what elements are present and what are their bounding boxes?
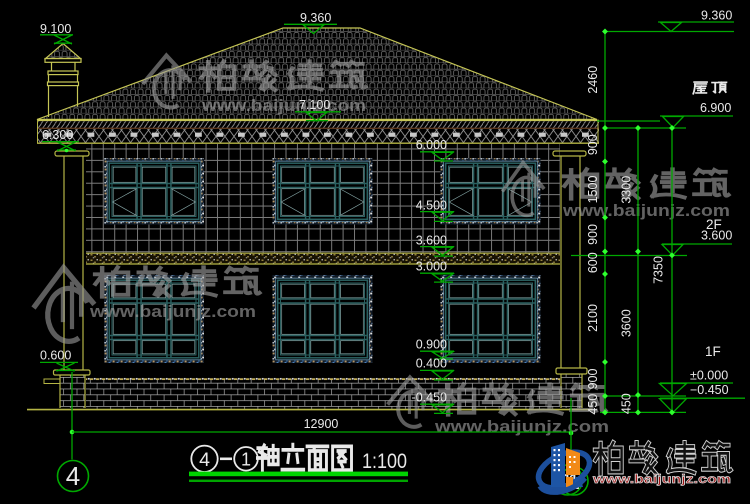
svg-text:12900: 12900 [304,417,339,431]
svg-text:6.000: 6.000 [416,138,447,152]
svg-text:600: 600 [586,252,600,273]
svg-text:1:100: 1:100 [362,449,407,473]
svg-text:3600: 3600 [620,309,634,337]
svg-text:1500: 1500 [586,176,600,204]
svg-text:-0.450: -0.450 [412,391,447,405]
svg-text:3.600: 3.600 [416,234,447,248]
svg-text:0.900: 0.900 [416,338,447,352]
svg-text:1: 1 [241,450,251,470]
svg-text:2460: 2460 [586,66,600,94]
svg-text:900: 900 [586,369,600,390]
svg-text:4.500: 4.500 [416,199,447,213]
svg-text:www.baijunjz.com: www.baijunjz.com [201,96,366,115]
svg-text:900: 900 [586,134,600,155]
svg-text:9.100: 9.100 [40,22,71,36]
svg-text:900: 900 [586,224,600,245]
svg-text:6.300: 6.300 [42,128,73,142]
svg-text:6.900: 6.900 [700,101,731,115]
svg-text:1F: 1F [705,344,721,359]
svg-text:www.baijunjz.com: www.baijunjz.com [89,302,256,321]
svg-text:0.600: 0.600 [40,349,71,363]
svg-text:9.360: 9.360 [701,9,732,23]
svg-text:2100: 2100 [586,304,600,332]
svg-text:3300: 3300 [620,176,634,204]
svg-text:9.360: 9.360 [300,11,331,25]
svg-text:450: 450 [620,393,634,414]
svg-text:7350: 7350 [652,256,666,284]
svg-text:−0.450: −0.450 [690,383,729,397]
svg-text:450: 450 [586,394,600,415]
svg-text:0.400: 0.400 [416,357,447,371]
svg-text:7.100: 7.100 [299,98,330,112]
svg-text:3.000: 3.000 [416,260,447,274]
svg-text:4: 4 [66,461,80,491]
svg-text:www.baijunjz.com: www.baijunjz.com [592,472,731,486]
svg-text:±0.000: ±0.000 [690,369,728,383]
svg-text:4: 4 [199,449,210,471]
svg-text:www.baijunjz.com: www.baijunjz.com [434,417,609,436]
svg-text:3.600: 3.600 [701,229,732,243]
